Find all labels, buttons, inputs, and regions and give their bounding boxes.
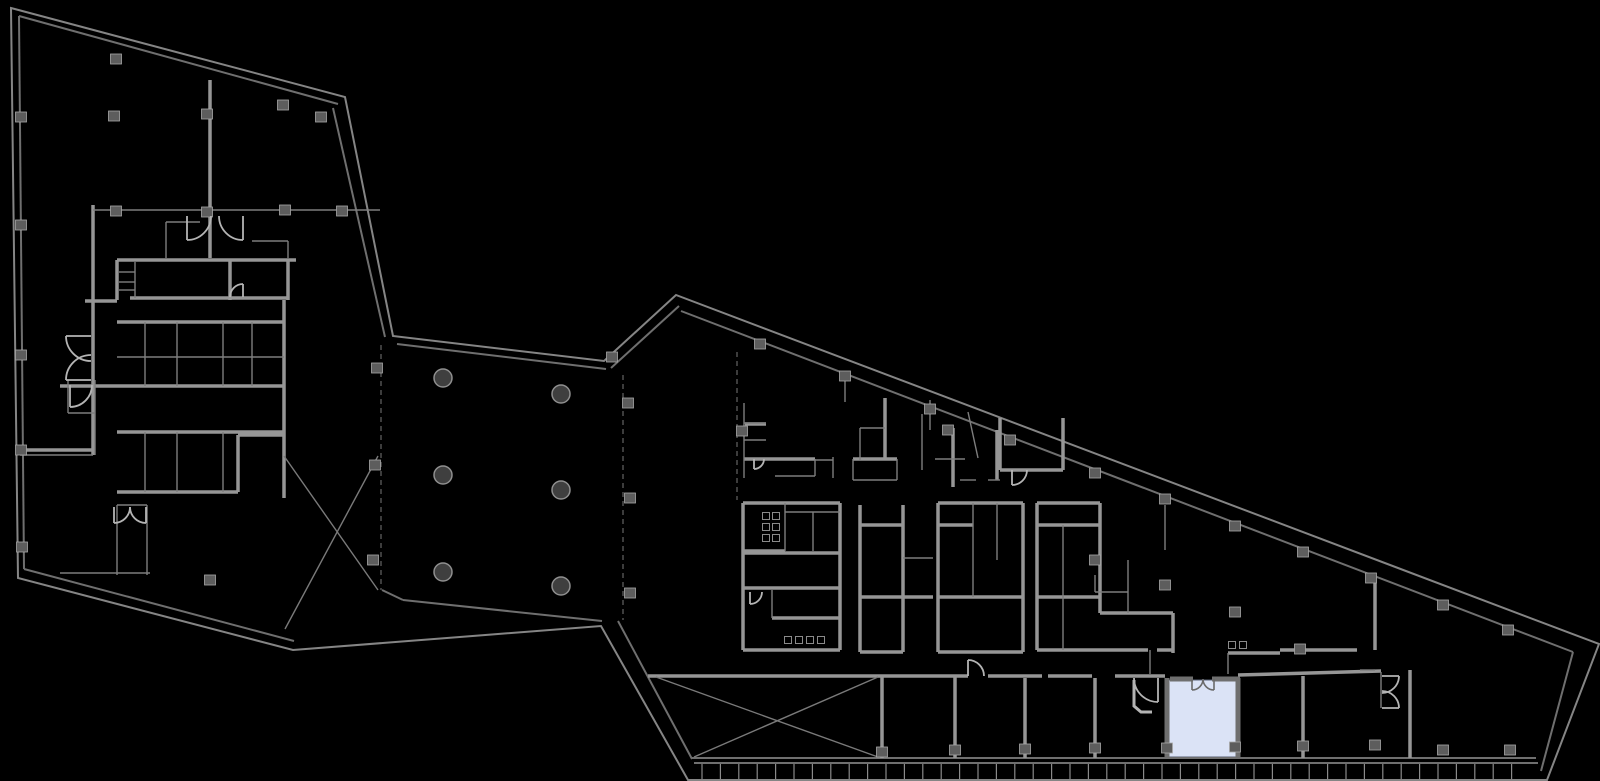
- column-marker: [16, 112, 27, 122]
- column-marker: [1162, 743, 1173, 753]
- walls-thick: [20, 80, 1410, 758]
- column-marker: [796, 637, 803, 644]
- round-column: [552, 577, 570, 595]
- wall-segment: [19, 16, 24, 569]
- wall-segment: [382, 590, 403, 600]
- door-swing-arc: [750, 592, 762, 604]
- column-marker: [370, 460, 381, 470]
- inner-boundary: [19, 16, 1573, 771]
- wall-segment: [24, 569, 294, 641]
- column-marker: [1230, 521, 1241, 531]
- door-swing-arc: [1012, 470, 1027, 485]
- column-marker: [1005, 435, 1016, 445]
- column-marker: [1230, 742, 1241, 752]
- wall-segment: [403, 600, 602, 621]
- column-marker: [737, 426, 748, 436]
- column-marker: [925, 404, 936, 414]
- highlight-room-area[interactable]: [1169, 680, 1237, 757]
- column-marker: [1503, 625, 1514, 635]
- column-marker: [763, 524, 770, 531]
- round-columns: [434, 369, 570, 595]
- round-column: [434, 466, 452, 484]
- outer-boundary: [11, 8, 1599, 780]
- outer-boundary-shape: [11, 8, 1599, 780]
- column-marker: [16, 350, 27, 360]
- window-mullion-ticks: [702, 764, 1512, 779]
- walls-thin: [20, 210, 1381, 708]
- column-marker: [280, 205, 291, 215]
- column-marker: [111, 206, 122, 216]
- wall-segment: [1238, 671, 1381, 675]
- column-marker: [607, 352, 618, 362]
- column-marker: [1366, 573, 1377, 583]
- column-marker: [1160, 580, 1171, 590]
- door-swing-arc: [230, 284, 243, 297]
- door-swing-arc: [219, 216, 243, 240]
- column-marker: [316, 112, 327, 122]
- column-marker: [840, 371, 851, 381]
- column-marker: [111, 54, 122, 64]
- column-marker: [1229, 642, 1236, 649]
- column-marker: [1090, 743, 1101, 753]
- column-marker: [1160, 494, 1171, 504]
- wall-segment: [284, 456, 378, 590]
- column-marker: [625, 588, 636, 598]
- door-swing-arc: [187, 216, 211, 240]
- column-marker: [1505, 745, 1516, 755]
- column-marker: [1240, 642, 1247, 649]
- cross-braces: [284, 456, 878, 757]
- column-marker: [1090, 555, 1101, 565]
- column-marker: [763, 535, 770, 542]
- column-marker: [1370, 740, 1381, 750]
- column-marker: [205, 575, 216, 585]
- wall-segment: [656, 677, 878, 757]
- column-marker: [202, 109, 213, 119]
- door-swing-arc: [70, 385, 92, 407]
- column-marker: [16, 445, 27, 455]
- door-swing-arc: [66, 355, 91, 380]
- floor-plan-canvas: [0, 0, 1600, 781]
- wall-segment: [968, 412, 978, 458]
- column-marker: [1230, 607, 1241, 617]
- column-marker: [372, 363, 383, 373]
- column-marker: [877, 747, 888, 757]
- column-marker: [755, 339, 766, 349]
- door-swing-arc: [130, 507, 146, 523]
- round-column: [434, 563, 452, 581]
- wall-segment: [19, 16, 338, 104]
- column-marker: [278, 100, 289, 110]
- wall-segment: [618, 621, 692, 759]
- column-marker: [818, 637, 825, 644]
- floor-plan-viewport: [0, 0, 1600, 781]
- round-column: [434, 369, 452, 387]
- round-column: [552, 385, 570, 403]
- highlight-room[interactable]: [1169, 680, 1237, 757]
- column-marker: [807, 637, 814, 644]
- column-marker: [785, 637, 792, 644]
- column-marker: [763, 513, 770, 520]
- column-marker: [1295, 644, 1306, 654]
- wall-segment: [611, 306, 679, 368]
- column-marker: [773, 513, 780, 520]
- column-marker: [1020, 744, 1031, 754]
- wall-segment: [694, 677, 878, 757]
- column-marker: [1438, 600, 1449, 610]
- column-marker: [623, 398, 634, 408]
- column-marker: [1298, 547, 1309, 557]
- column-marker: [368, 555, 379, 565]
- round-column: [552, 481, 570, 499]
- column-marker: [16, 220, 27, 230]
- wall-segment: [285, 456, 378, 629]
- door-swing-arc: [968, 660, 984, 676]
- column-marker: [337, 206, 348, 216]
- column-marker: [943, 425, 954, 435]
- wall-segment: [333, 108, 385, 337]
- column-marker: [17, 542, 28, 552]
- column-marker: [773, 535, 780, 542]
- column-marker: [202, 207, 213, 217]
- column-marker: [773, 524, 780, 531]
- column-marker: [1438, 745, 1449, 755]
- wall-segment: [397, 344, 606, 369]
- column-marker: [109, 111, 120, 121]
- column-marker: [1090, 468, 1101, 478]
- column-marker: [950, 745, 961, 755]
- door-swing-arc: [1134, 678, 1158, 702]
- column-marker: [625, 493, 636, 503]
- column-marker: [1298, 741, 1309, 751]
